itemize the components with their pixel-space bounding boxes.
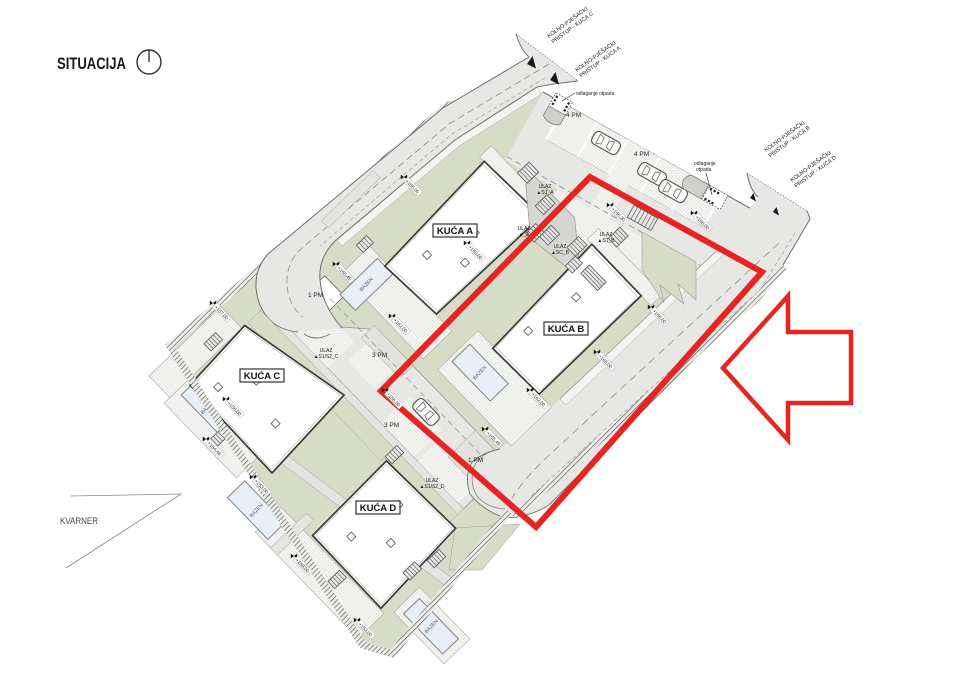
- svg-text:▲S1/S2_C: ▲S1/S2_C: [314, 354, 339, 360]
- svg-text:KUĆA C: KUĆA C: [244, 370, 281, 382]
- svg-text:KVARNER: KVARNER: [60, 516, 98, 527]
- svg-text:▲S1_A: ▲S1_A: [536, 190, 554, 196]
- svg-text:3 PM: 3 PM: [384, 422, 399, 429]
- svg-text:KUĆA B: KUĆA B: [548, 323, 585, 335]
- svg-text:SITUACIJA: SITUACIJA: [57, 54, 126, 73]
- svg-text:3 PM: 3 PM: [372, 352, 387, 359]
- svg-text:KUĆA A: KUĆA A: [437, 225, 473, 237]
- svg-text:otpada: otpada: [696, 167, 712, 173]
- svg-text:4 PM: 4 PM: [566, 112, 581, 119]
- svg-text:▲SC_B: ▲SC_B: [551, 250, 570, 256]
- svg-text:4 PM: 4 PM: [634, 151, 649, 158]
- svg-text:▲S1/S2_D: ▲S1/S2_D: [420, 484, 445, 490]
- svg-text:▲S1_B: ▲S1_B: [597, 238, 615, 244]
- svg-text:odlaganje otpada: odlaganje otpada: [576, 91, 615, 97]
- svg-text:▲_A: ▲_A: [518, 232, 530, 238]
- svg-text:1 PM: 1 PM: [468, 457, 483, 464]
- svg-text:1 PM: 1 PM: [308, 292, 323, 299]
- svg-text:KUĆA D: KUĆA D: [360, 502, 397, 514]
